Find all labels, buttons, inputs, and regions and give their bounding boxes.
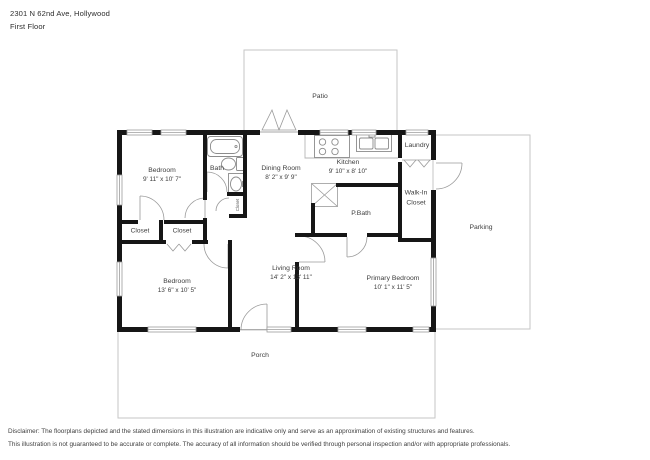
walkin-name-line1: Walk-In	[405, 188, 428, 198]
window	[406, 130, 428, 135]
room-label-closet-hall: Closet	[235, 199, 241, 211]
window	[352, 130, 376, 135]
room-label-bedroom-1: Bedroom 9' 11" x 10' 7"	[143, 166, 181, 184]
room-label-laundry: Laundry	[405, 141, 430, 151]
bedroom1-dims: 9' 11" x 10' 7"	[143, 175, 181, 184]
living-dims: 14' 2" x 13' 11"	[270, 273, 312, 282]
shower-fixture	[312, 184, 338, 207]
closet-right-bifold-icon	[167, 244, 191, 251]
floorplan-page: 2301 N 62nd Ave, Hollywood First Floor	[0, 0, 650, 460]
room-label-porch: Porch	[251, 351, 269, 361]
bathtub-fixture	[208, 137, 243, 157]
bath-name: Bath	[210, 164, 224, 174]
room-label-primary-bedroom: Primary Bedroom 10' 1" x 11' 5"	[367, 274, 420, 292]
porch-door-arc	[240, 304, 267, 330]
primary-bath-door-arc	[347, 237, 367, 257]
bedroom2-dims: 13' 6" x 10' 5"	[158, 286, 197, 295]
room-label-primary-bath: P.Bath	[351, 209, 371, 219]
kitchen-dims: 9' 10" x 8' 10"	[329, 167, 368, 176]
window	[127, 130, 152, 135]
exterior-walls	[117, 130, 436, 332]
closet-right-name: Closet	[173, 226, 192, 235]
bedroom2-door-arc	[204, 244, 228, 268]
bath-sink-fixture	[229, 174, 245, 195]
bedroom1-door-arc	[185, 198, 205, 218]
dining-name: Dining Room	[261, 164, 300, 174]
walkin-name-line2: Closet	[405, 198, 428, 208]
primary-bedroom-dims: 10' 1" x 11' 5"	[367, 283, 420, 292]
kitchen-sink-fixture	[357, 135, 392, 152]
closet-left-name: Closet	[131, 226, 150, 235]
interior-walls	[117, 130, 436, 332]
laundry-name: Laundry	[405, 141, 430, 151]
room-label-kitchen: Kitchen 9' 10" x 8' 10"	[329, 158, 368, 176]
window	[431, 258, 436, 306]
window	[161, 130, 186, 135]
laundry-bifold-icon	[402, 160, 431, 167]
room-label-bath: Bath	[210, 164, 224, 174]
window	[267, 327, 291, 332]
window	[413, 327, 429, 332]
window	[148, 327, 196, 332]
closet-hall-name: Closet	[235, 199, 241, 211]
windows	[117, 130, 436, 332]
living-name: Living Room	[270, 264, 312, 274]
primary-bath-name: P.Bath	[351, 209, 371, 219]
room-label-patio: Patio	[312, 92, 328, 102]
bedroom2-name: Bedroom	[158, 277, 197, 287]
stove-fixture	[315, 136, 350, 158]
room-label-bedroom-2: Bedroom 13' 6" x 10' 5"	[158, 277, 197, 295]
room-label-dining-room: Dining Room 8' 2" x 9' 9"	[261, 164, 300, 182]
disclaimer-line-1: Disclaimer: The floorplans depicted and …	[8, 428, 475, 435]
room-label-living-room: Living Room 14' 2" x 13' 11"	[270, 264, 312, 282]
porch-name: Porch	[251, 351, 269, 361]
window	[117, 175, 122, 205]
floorplan-drawing	[0, 0, 650, 460]
room-label-walk-in-closet: Walk-In Closet	[405, 188, 428, 207]
parking-name: Parking	[469, 223, 492, 233]
bath-door-arc	[207, 172, 227, 192]
hall-closet-door-arc	[216, 198, 229, 211]
room-label-parking: Parking	[469, 223, 492, 233]
dining-dims: 8' 2" x 9' 9"	[261, 173, 300, 182]
window	[320, 130, 348, 135]
primary-bedroom-door-arc	[299, 236, 325, 262]
room-label-closet-right: Closet	[173, 226, 192, 235]
window	[338, 327, 366, 332]
primary-bedroom-name: Primary Bedroom	[367, 274, 420, 284]
disclaimer-line-2: This illustration is not guaranteed to b…	[8, 441, 510, 448]
bedroom1-name: Bedroom	[143, 166, 181, 176]
closet-left-door-arc	[140, 196, 164, 220]
kitchen-name: Kitchen	[329, 158, 368, 168]
patio-name: Patio	[312, 92, 328, 102]
porch-outline	[118, 330, 435, 418]
toilet-fixture	[222, 158, 245, 171]
room-label-closet-left: Closet	[131, 226, 150, 235]
window	[117, 262, 122, 296]
